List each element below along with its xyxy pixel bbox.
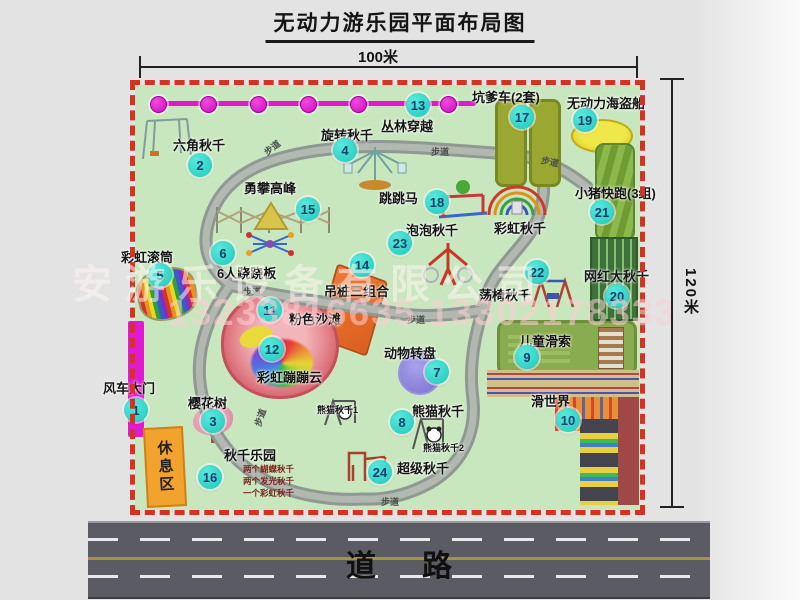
label-panda-swing: 熊猫秋千 — [412, 401, 464, 420]
jungle-crossing-node — [440, 96, 457, 113]
label-pit-car: 坑爹车(2套) — [472, 87, 540, 106]
jungle-crossing-node — [350, 96, 367, 113]
label-pink-beach: 粉色沙滩 — [289, 309, 341, 328]
badge-18: 18 — [425, 190, 449, 214]
badge-22: 22 — [525, 260, 549, 284]
jungle-crossing-node — [300, 96, 317, 113]
badge-20: 20 — [605, 284, 629, 308]
badge-23: 23 — [388, 231, 412, 255]
badge-16: 16 — [198, 465, 222, 489]
dimension-tick-right-bottom — [660, 506, 684, 508]
label-bubble-swing: 泡泡秋千 — [406, 220, 458, 239]
label-jumping-horse: 跳跳马 — [379, 188, 418, 207]
page-title: 无动力游乐园平面布局图 — [266, 7, 535, 43]
road: 道路 — [88, 521, 710, 599]
path-label: 步道 — [381, 495, 399, 508]
dimension-line-right — [671, 79, 673, 508]
badge-14: 14 — [350, 253, 374, 277]
dimension-width-label: 100米 — [358, 46, 398, 67]
rest-area-block: 休息区 — [143, 426, 187, 508]
badge-2: 2 — [188, 153, 212, 177]
label-big-net-swing: 网红大秋千 — [584, 266, 649, 285]
badge-21: 21 — [590, 200, 614, 224]
label-swing-chair: 荡椅秋千 — [479, 285, 531, 304]
badge-11: 11 — [258, 298, 282, 322]
badge-5: 5 — [148, 263, 172, 287]
jungle-crossing-node — [200, 96, 217, 113]
badge-17: 17 — [510, 105, 534, 129]
road-label: 道路 — [88, 541, 710, 585]
dimension-height-label: 120米 — [680, 268, 701, 316]
badge-1: 1 — [124, 398, 148, 422]
dimension-tick-top-right — [636, 56, 638, 78]
label-rainbow-roller: 彩虹滚筒 — [121, 247, 173, 266]
badge-12: 12 — [260, 337, 284, 361]
badge-9: 9 — [515, 345, 539, 369]
label-slide-world: 滑世界 — [531, 391, 570, 410]
bubble-swing-icon — [421, 235, 475, 289]
badge-13: 13 — [406, 93, 430, 117]
badge-19: 19 — [573, 108, 597, 132]
jungle-crossing-node — [250, 96, 267, 113]
path-label: 步道 — [243, 285, 261, 298]
seesaw-icon — [243, 225, 297, 263]
label-rainbow-swing: 彩虹秋千 — [494, 218, 546, 237]
label-animal-turntable: 动物转盘 — [384, 343, 436, 362]
label-hex-swing: 六角秋千 — [173, 135, 225, 154]
swing-park-note-3: 一个彩虹秋千 — [243, 487, 294, 499]
label-super-swing: 超级秋千 — [397, 458, 449, 477]
badge-10: 10 — [556, 408, 580, 432]
badge-6: 6 — [211, 241, 235, 265]
swing-park-note-2: 两个发光秋千 — [243, 475, 294, 487]
path-label: 步道 — [431, 145, 449, 158]
swing-park-note-1: 两个蝴蝶秋千 — [243, 463, 294, 475]
dimension-tick-right-top — [660, 78, 684, 80]
label-swing-park: 秋千乐园 — [224, 445, 276, 464]
badge-3: 3 — [201, 409, 225, 433]
badge-4: 4 — [333, 138, 357, 162]
label-panda-swing-2: 熊猫秋千2 — [423, 441, 464, 454]
park-area: 步道 步道 步道 步道 步道 步道 步道 休息区 — [135, 85, 640, 510]
label-seesaw: 6人跷跷板 — [217, 263, 276, 282]
badge-8: 8 — [390, 410, 414, 434]
badge-7: 7 — [425, 360, 449, 384]
label-rainbow-cloud: 彩虹蹦蹦云 — [257, 367, 322, 386]
label-hanging-pile: 吊桩三组合 — [324, 281, 389, 300]
label-jungle-crossing: 丛林穿越 — [381, 116, 433, 135]
label-windmill-gate: 风车大门 — [103, 378, 155, 397]
path-label: 步道 — [407, 313, 425, 326]
badge-24: 24 — [368, 460, 392, 484]
label-pig-run: 小猪快跑(3组) — [575, 183, 656, 202]
playground-plan: 无动力游乐园平面布局图 100米 120米 — [0, 0, 800, 600]
label-panda-swing-1: 熊猫秋千1 — [317, 403, 358, 416]
dimension-tick-top-left — [139, 56, 141, 78]
badge-15: 15 — [296, 197, 320, 221]
label-climbing-peak: 勇攀高峰 — [244, 178, 296, 197]
